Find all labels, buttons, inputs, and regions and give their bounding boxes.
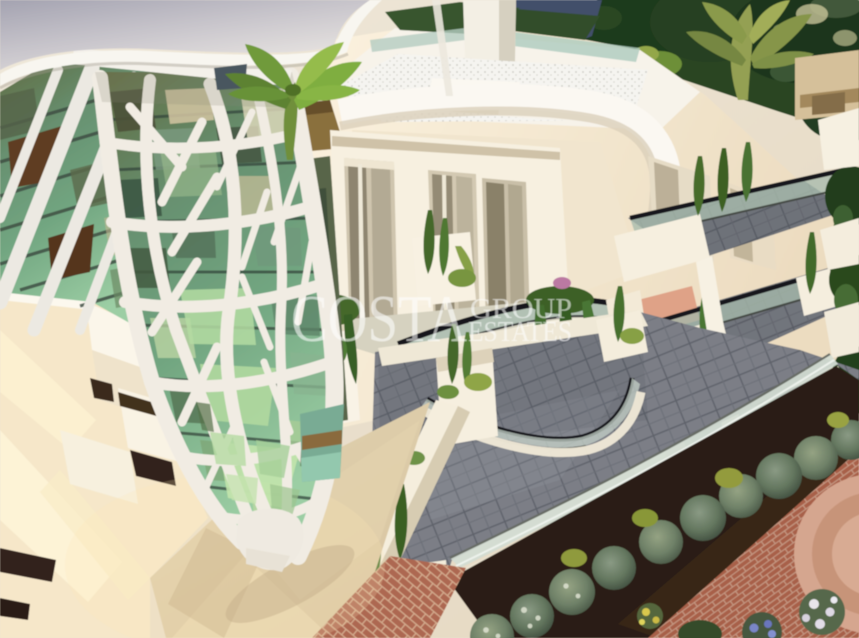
svg-text:COSTA: COSTA <box>291 282 467 356</box>
svg-text:ESTATES: ESTATES <box>468 317 572 348</box>
